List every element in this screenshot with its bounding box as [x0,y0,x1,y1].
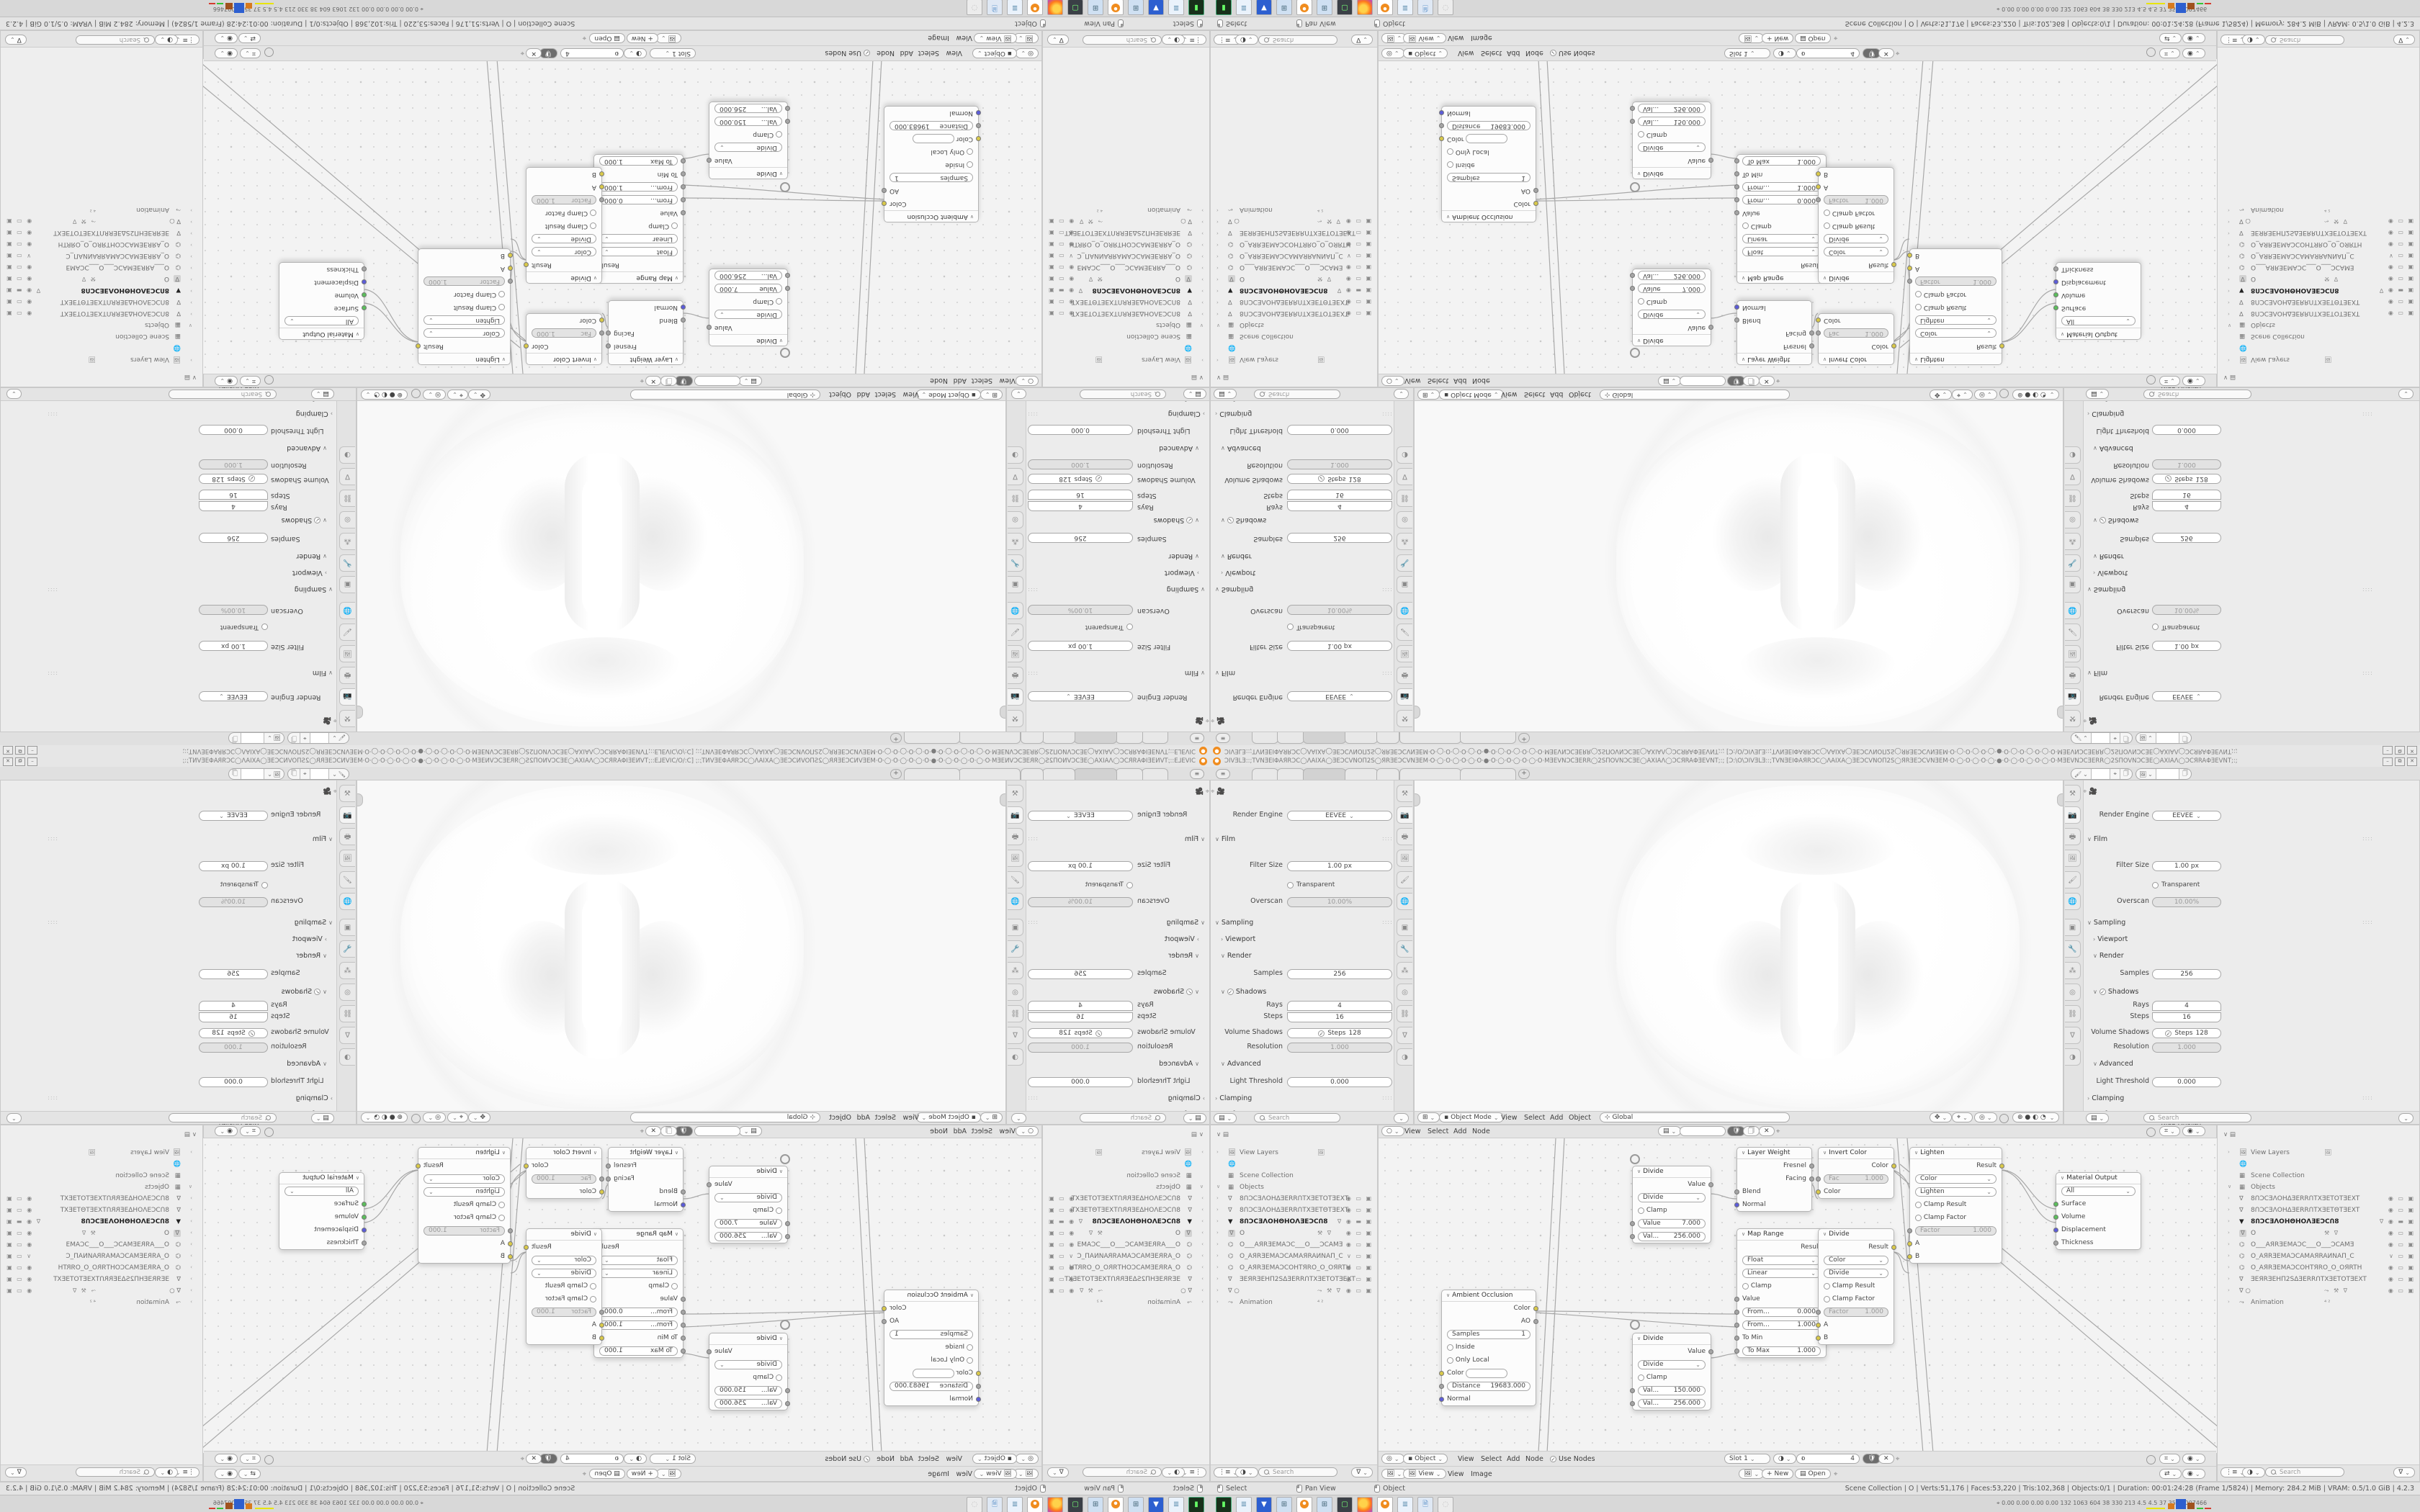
socket-ao-output[interactable] [882,189,887,194]
flip-dropdown[interactable]: ⇄⌄ [238,1469,261,1479]
socket-value-output[interactable] [707,1182,712,1187]
outliner-search-input[interactable]: Search [2265,1467,2344,1477]
factor-field[interactable]: Factor1.000 [1915,1226,1996,1236]
section-film[interactable]: ∨Film [2087,835,2107,843]
render-tab-icon[interactable]: 📷 [339,806,355,824]
light-threshold-field[interactable]: 0.000 [1028,425,1133,435]
overlay-toggle[interactable] [2146,1455,2156,1464]
menu-view[interactable]: View [1448,34,1464,42]
resolution-field[interactable]: 1.000 [2152,459,2221,469]
socket-a-input[interactable] [599,1323,604,1328]
proportional-dropdown[interactable]: ◎⌄ [423,390,446,400]
section-sampling[interactable]: ∨Sampling [295,919,333,927]
outliner-object-row-selected[interactable]: ›▼8ՈƆCƎΛOHΘHOΛƎEƆCՈ8∇ ◉ ▬ ▣ [1043,283,1209,294]
snapping-dropdown[interactable]: ⌖⌄ [1952,390,1973,400]
samples-field[interactable]: 256 [199,969,268,979]
socket-fresnel-output[interactable] [606,344,611,349]
node-ambient-occlusion[interactable]: ∨Ambient Occlusion Color AO Samples1 Ins… [1441,1290,1536,1406]
socket-value-output[interactable] [1708,1182,1713,1187]
filter-size-field[interactable]: 1.00 px [1028,861,1133,871]
node-invert-color[interactable]: ∨Invert Color Color Fac1.000 Color [1818,1147,1894,1199]
fac-field[interactable]: Fac1.000 [532,329,596,338]
resolution-field[interactable]: 1.000 [1028,1043,1133,1053]
socket-blend-input[interactable] [1734,1189,1739,1194]
unlink-button[interactable]: ✕ [645,1126,661,1136]
data-type-select[interactable]: Color⌄ [532,1256,596,1265]
outliner-row-scene-collection[interactable]: ▦Scene Collection [1,1172,202,1183]
outliner-filter-button[interactable]: ∇ ⌄ [1351,35,1373,45]
section-viewport[interactable]: ›Viewport [292,569,327,577]
taskbar-blender-icon[interactable] [1377,1497,1393,1512]
color-swatch[interactable] [1466,135,1507,144]
menu-select[interactable]: Select [1524,1114,1545,1122]
color-swatch[interactable] [913,135,954,144]
section-clamping[interactable]: ›Clamping [1168,1094,1205,1102]
particles-tab-icon[interactable]: ⁂ [1008,533,1023,550]
shading-mode-buttons[interactable]: ⊕ ● ◐ ◔ ⌄ [2012,1112,2059,1122]
outliner-row-scene-collection[interactable]: ▦Scene Collection [1,329,202,340]
socket-color-output[interactable] [524,1164,529,1169]
node-mix-lighten[interactable]: ∨Lighten Result Color⌄ Lighten⌄ Clamp Re… [418,1147,511,1264]
outliner-display-mode[interactable]: ∨ ▤ [184,1131,197,1138]
editor-type-button[interactable]: ○⌄ [1381,376,1404,386]
node-map-range[interactable]: ∨Map Range Result Float⌄ Linear⌄ Clamp V… [1736,1228,1827,1358]
topbar-menu-button[interactable]: ≡ [1216,769,1230,779]
outliner-object-row[interactable]: ›⌬O_AЯRƎEMAƆCAMAЯRAИNAΠ_C∨ ▭ ▣ [1211,1253,1377,1264]
section-render[interactable]: ∨Render [296,552,327,560]
scene-name-field[interactable] [310,733,329,743]
menu-add[interactable]: Add [1507,1455,1520,1463]
outliner-search-input[interactable]: Search [1083,1467,1162,1477]
taskbar-blender-icon[interactable] [1027,0,1043,15]
menu-view[interactable]: View [1404,377,1421,384]
constraints-tab-icon[interactable]: ⛓ [339,1005,355,1022]
from-min-field[interactable]: From...0.000 [1742,1308,1821,1317]
outliner-filter-button[interactable]: ∇ ⌄ [1047,1467,1069,1477]
node-layer-weight[interactable]: ∨Layer Weight Fresnel Facing Blend Norma… [608,1147,684,1212]
outliner-object-row[interactable]: ›∇8ՈƆCƎΛOHΔƎERRՈTXƎETOTƎEXT◉ ▭ ▣ [1,1195,202,1206]
distance-field[interactable]: Distance19683.000 [889,1382,973,1391]
transparent-checkbox[interactable]: Transparent [1287,880,1392,890]
viewport-3d[interactable]: ⊞⌄ ▪ Object Mode ⌄ View Select Add Objec… [1414,780,2063,1125]
filter-size-field[interactable]: 1.00 px [199,861,268,871]
material-tab-icon[interactable]: ◑ [2065,1048,2081,1066]
value-field[interactable]: Value7.000 [714,284,782,294]
add-workspace-button[interactable]: + [1518,733,1530,743]
outliner-search-input[interactable]: Search [2265,35,2344,45]
outliner-object-row[interactable]: ›⌬O___AЯRƎEMAƆC___O___ƆCAMƎ◉ ▭ ▣ [1,260,202,271]
material-tab-icon[interactable]: ◑ [1397,1048,1412,1066]
scene-tab-icon[interactable]: 🖌 [1008,871,1023,888]
data-tab-icon[interactable]: ∇ [2065,468,2081,485]
taskbar-firefox-icon[interactable] [1047,1497,1063,1512]
overscan-field[interactable]: 10.00% [199,605,268,615]
unlink-button[interactable]: ✕ [645,376,661,386]
unlink-button[interactable]: ✕ [526,48,542,58]
section-advanced[interactable]: ∨Advanced [287,444,327,452]
gizmo-dropdown[interactable]: ✥⌄ [1930,390,1952,400]
tool-tab-icon[interactable]: ⚒ [1397,785,1412,802]
constraints-tab-icon[interactable]: ⛓ [1008,1005,1023,1022]
editor-type-button[interactable]: ⊞⌄ [1417,390,1440,400]
tool-tab-icon[interactable]: ⚒ [2065,710,2081,727]
taskbar-blender-icon[interactable] [1296,1497,1312,1512]
data-type-select[interactable]: Color⌄ [1824,248,1888,257]
outliner-row-view-layers[interactable]: ›🖼View Layers🖼 [1211,352,1377,363]
outliner-row-scene-collection[interactable]: ▦Scene Collection [1211,329,1377,340]
image-selector-icon[interactable]: 🖼⌄ [1739,1469,1764,1479]
outliner-object-row[interactable]: ›⌬O_AЯRƎEMAƆCOHTЯRO_O_OЯRTH◉ ▭ ▣ [1,1264,202,1275]
scene-tab-icon[interactable]: 🖌 [2065,871,2081,888]
socket-facing-output[interactable] [606,1176,611,1182]
workspace-tab[interactable] [1042,768,1075,780]
outliner-row-view-layers[interactable]: ›🖼View Layers🖼 [2218,1149,2419,1160]
overlays-dropdown[interactable]: ◉⌄ [2182,33,2205,43]
new-material-button[interactable]: 🗍 [660,1126,677,1136]
taskbar-monitor-icon[interactable]: ▢ [1067,0,1083,15]
section-sampling[interactable]: ∨Sampling [1215,919,1253,927]
outliner-filter-button[interactable]: ∇ ⌄ [2393,1467,2415,1477]
render-tab-icon[interactable]: 📷 [2065,688,2081,706]
editor-type-button[interactable]: ◎⌄ [1381,48,1404,58]
distance-field[interactable]: Distance19683.000 [1447,1382,1531,1391]
outliner-object-row[interactable]: ›∇8ՈƆCƎΛOHΔƎERRՈTXƎETΘTƎEXT◉ ▭ ▣ [1211,294,1377,305]
section-film[interactable]: ∨Film [313,669,333,677]
socket-b-input[interactable] [1907,1254,1912,1259]
workspace-tab[interactable] [1376,732,1399,744]
menu-view[interactable]: View [946,49,962,57]
menu-view[interactable]: View [1501,390,1518,398]
node-mix-divide[interactable]: ∨Divide Result Color⌄ Divide⌄ Clamp Resu… [526,167,602,284]
node-math-divide[interactable]: ∨Divide Value Divide⌄ Clamp Value7.000 V… [709,1166,788,1243]
steps-field[interactable]: 16 [1287,490,1392,500]
snapping-dropdown[interactable]: ⌗⌄ [240,376,261,386]
node-math-divide[interactable]: ∨Divide Value Divide⌄ Clamp Val...150.00… [1632,102,1711,179]
render-engine-select[interactable]: EEVEE⌄ [199,691,268,701]
data-type-select[interactable]: Float⌄ [599,1256,678,1265]
menu-select[interactable]: Select [918,1455,939,1463]
outliner-object-row-active[interactable]: ›∇O⚒ ∇◉ ▭ ▣ [2218,1230,2419,1241]
section-clamping[interactable]: ›Clamping [1168,410,1205,418]
light-threshold-field[interactable]: 0.000 [2152,425,2221,435]
outliner-object-row[interactable]: ›⌬O_AЯRƎEMAƆCAMAЯRAИNAΠ_C∨ ▭ ▣ [2218,1253,2419,1264]
outliner-object-row[interactable]: ›∇8ՈƆCƎΛOHΔƎERRՈTXƎETΘTƎEXT◉ ▭ ▣ [1,1207,202,1218]
section-render[interactable]: ∨Render [1168,952,1199,960]
editor-type-button[interactable]: ○⌄ [1016,376,1039,386]
pin-icon[interactable]: ⌖ [521,49,524,57]
view-layer-name-field[interactable] [241,733,264,743]
scene-selector[interactable]: 🖌⌄ ⌖ 🗍 [2071,732,2133,744]
node-material-output[interactable]: ∨Material Output All⌄ Surface Volume Dis… [2056,262,2141,340]
material-name-field[interactable] [1680,376,1726,386]
menu-select[interactable]: Select [1481,49,1502,57]
material-tab-icon[interactable]: ◑ [339,1048,355,1066]
node-mix-lighten[interactable]: ∨Lighten Result Color⌄ Lighten⌄ Clamp Re… [1909,248,2002,365]
light-threshold-field[interactable]: 0.000 [1287,425,1392,435]
render-engine-select[interactable]: EEVEE⌄ [2152,691,2221,701]
samples-field[interactable]: 256 [1287,533,1392,543]
editor-type-button[interactable]: ◎⌄ [1381,1454,1404,1464]
outliner-object-row[interactable]: ›⌬O___AЯRƎEMAƆC___O___ƆCAMƎ◉ ▭ ▣ [1211,260,1377,271]
socket-a-input[interactable] [1907,1241,1912,1246]
section-clamping[interactable]: ›Clamping [296,1094,333,1102]
menu-view[interactable]: View [1448,1470,1464,1478]
operation-select[interactable]: Divide⌄ [714,1360,782,1369]
outliner-row-view-layers[interactable]: ›🖼View Layers🖼 [1,1149,202,1160]
new-material-button[interactable]: 🗍 [1743,376,1760,386]
outliner-object-row[interactable]: ›⌬O_AЯRƎEMAƆCAMAЯRAИNAΠ_C∨ ▭ ▣ [1211,248,1377,259]
particles-tab-icon[interactable]: ⁂ [1008,962,1023,979]
section-advanced[interactable]: ∨Advanced [1159,1060,1199,1068]
node-material-output[interactable]: ∨Material Output All⌄ Surface Volume Dis… [279,262,364,340]
output-tab-icon[interactable]: 🖶 [1397,667,1412,684]
unlink-button[interactable]: ✕ [1878,48,1894,58]
section-viewport[interactable]: ›Viewport [2093,935,2128,943]
socket-surface-input[interactable] [2053,1202,2058,1207]
overscan-field[interactable]: 10.00% [2152,605,2221,615]
node-invert-color[interactable]: ∨Invert Color Color Fac1.000 Color [1818,313,1894,365]
resolution-field[interactable]: 1.000 [199,1043,268,1053]
outliner-filter-button[interactable]: ∇ ⌄ [2393,35,2415,45]
steps-field[interactable]: 16 [2152,490,2221,500]
transform-orientation-select[interactable]: ⊹ Global [630,390,820,400]
menu-node[interactable]: Node [930,1128,948,1135]
operation-select[interactable]: Divide⌄ [714,1193,782,1202]
taskbar-terminal-icon[interactable]: ▮ [1216,1497,1232,1512]
torus-object[interactable] [400,402,804,726]
outliner-object-row[interactable]: ›⌬O___AЯRƎEMAƆC___O___ƆCAMƎ◉ ▭ ▣ [1043,260,1209,271]
transparent-checkbox[interactable]: Transparent [2152,622,2221,632]
value-field[interactable]: Val...150.000 [1638,1386,1706,1395]
socket-value-input[interactable] [681,1297,686,1302]
outliner-search-input[interactable]: Search [1258,1467,1337,1477]
menu-add[interactable]: Add [954,1128,967,1135]
node-invert-color[interactable]: ∨Invert Color Color Fac1.000 Color [526,313,602,365]
editor-type-button[interactable]: ▤⌄ [1214,1113,1237,1123]
outliner-object-row[interactable]: ›∇8ՈƆCƎΛOHΔƎERRՈTXƎETOTƎEXT◉ ▭ ▣ [1211,306,1377,317]
properties-search-input[interactable]: Search [169,390,277,399]
node-map-range[interactable]: ∨Map Range Result Float⌄ Linear⌄ Clamp V… [593,1228,684,1358]
taskbar-notes-icon[interactable]: ≣ [1397,0,1413,15]
outliner-object-row[interactable]: ›∇ƎEЯRƎEHΠ2SΔƎERRՈTXƎETOTƎEXT◉ ▭ ▣ [2218,1276,2419,1287]
taskbar-documents-icon[interactable]: 🗎 [1417,1497,1433,1512]
light-threshold-field[interactable]: 0.000 [2152,1077,2221,1087]
socket-b-input[interactable] [599,1336,604,1341]
section-render[interactable]: ∨Render [1221,952,1252,960]
target-select[interactable]: All⌄ [2061,1187,2136,1196]
workspace-tab[interactable] [1277,768,1304,780]
value-field[interactable]: Value7.000 [714,1219,782,1228]
overlays-dropdown[interactable]: ◉⌄ [2182,1454,2205,1464]
menu-node[interactable]: Node [877,1455,895,1463]
render-engine-select[interactable]: EEVEE⌄ [199,811,268,821]
outliner-object-row[interactable]: ›⌬O_AЯRƎEMAƆCOHTЯRO_O_OЯRTH◉ ▭ ▣ [1043,237,1209,248]
from-min-field[interactable]: From...0.000 [1742,196,1821,205]
outliner-object-row-active[interactable]: ›∇O⚒ ∇◉ ▭ ▣ [1,1230,202,1241]
sidebar-toggle-arrow[interactable] [357,793,363,806]
physics-tab-icon[interactable]: ◎ [1397,511,1412,528]
particles-tab-icon[interactable]: ⁂ [339,962,355,979]
image-selector-icon[interactable]: 🖼⌄ [656,1469,681,1479]
node-canvas[interactable]: ∨Ambient Occlusion Color AO Samples1 Ins… [202,1138,1041,1453]
section-advanced[interactable]: ∨Advanced [2093,1060,2133,1068]
outliner-row-view-layers[interactable]: ›🖼View Layers🖼 [1,352,202,363]
menu-view[interactable]: View [956,34,972,42]
node-math-divide[interactable]: ∨Divide Value Divide⌄ Clamp Value7.000 V… [709,269,788,346]
object-tab-icon[interactable]: ▣ [1397,919,1412,936]
pin-icon[interactable]: ⌖ [1834,1470,1837,1478]
data-type-select[interactable]: Color⌄ [423,1174,505,1184]
outliner-row-scene-collection[interactable]: ▦Scene Collection [1211,1172,1377,1183]
pin-icon[interactable]: ⌖ [300,733,310,743]
resolution-field[interactable]: 1.000 [2152,1043,2221,1053]
outliner-row-scene-collection[interactable]: ▦Scene Collection [1043,1172,1209,1183]
outliner-object-row[interactable]: ›⌬O___AЯRƎEMAƆC___O___ƆCAMƎ◉ ▭ ▣ [2218,1241,2419,1252]
data-type-select[interactable]: Float⌄ [599,248,678,257]
outliner-object-row[interactable]: ›∇8ՈƆCƎΛOHΔƎERRՈTXƎETΘTƎEXT◉ ▭ ▣ [2218,1207,2419,1218]
properties-search-input[interactable]: Search [1080,390,1166,399]
section-render[interactable]: ∨Render [296,952,327,960]
menu-object[interactable]: Object [1569,390,1591,398]
node-canvas[interactable]: ∨Ambient Occlusion Color AO Samples1 Ins… [1379,59,2218,374]
editor-type-button[interactable]: ◎⌄ [1016,1454,1039,1464]
distance-field[interactable]: Distance19683.000 [889,122,973,131]
material-tab-icon[interactable]: ◑ [1008,1048,1023,1066]
minimize-button[interactable]: – [27,746,37,755]
outliner-filter-button[interactable]: ∇ ⌄ [5,1467,27,1477]
socket-color-input[interactable] [1439,1371,1444,1376]
copy-icon[interactable]: 🗍 [2179,769,2191,779]
pin-icon[interactable]: ⌖ [640,1128,644,1135]
socket-result-output[interactable] [1999,1164,2004,1169]
scene-tab-icon[interactable]: 🖌 [2065,624,2081,641]
outliner-row-world[interactable]: 🌐 [2218,1161,2419,1171]
volume-shadows-field[interactable]: ✓Steps128 [199,474,268,484]
factor-field[interactable]: Factor1.000 [423,1226,505,1236]
value-field[interactable]: Value7.000 [1638,284,1706,294]
socket-blend-input[interactable] [681,1189,686,1194]
rays-field[interactable]: 4 [199,501,268,511]
taskbar-notes-icon[interactable]: ≣ [1397,1497,1413,1512]
pin-icon[interactable]: ⌖ [583,1470,586,1478]
rays-field[interactable]: 4 [2152,1001,2221,1011]
outliner-row-animation[interactable]: ›⤳Animation⁴² [2218,1299,2419,1310]
material-icon-button[interactable]: ▤⌄ [739,376,762,386]
menu-select[interactable]: Select [1481,1455,1502,1463]
node-mix-lighten[interactable]: ∨Lighten Result Color⌄ Lighten⌄ Clamp Re… [1909,1147,2002,1264]
blend-mode-select[interactable]: Divide⌄ [1824,235,1888,244]
material-icon-button[interactable]: ▤⌄ [1658,1126,1681,1136]
snapping-dropdown[interactable]: ⌗⌄ [2159,376,2180,386]
taskbar-inactive-app-icon[interactable]: ◌ [967,1497,982,1512]
menu-add[interactable]: Add [900,1455,913,1463]
menu-add[interactable]: Add [1453,377,1466,384]
outliner-row-scene-collection[interactable]: ▦Scene Collection [2218,1172,2419,1183]
data-tab-icon[interactable]: ∇ [1397,468,1412,485]
socket-to-min-input[interactable] [681,1336,686,1341]
outliner-object-row[interactable]: ›∇ ○⤳ ⚒ ∇◉ ▭ ▣ [2218,214,2419,225]
volume-shadows-field[interactable]: ✓Steps128 [1287,474,1392,484]
samples-field[interactable]: 256 [1028,969,1133,979]
menu-select[interactable]: Select [875,1114,896,1122]
outliner-row-objects[interactable]: ∨▦Objects [1043,1184,1209,1194]
workspace-tab[interactable] [1460,732,1516,744]
menu-node[interactable]: Node [1525,49,1543,57]
transparent-checkbox[interactable]: Transparent [1287,622,1392,632]
volume-shadows-field[interactable]: ✓Steps128 [2152,1028,2221,1038]
world-tab-icon[interactable]: 🌐 [339,893,355,910]
material-tab-icon[interactable]: ◑ [1397,446,1412,464]
socket-color-output[interactable] [524,344,529,349]
outliner-object-row[interactable]: ›⌬O_AЯRƎEMAƆCOHTЯRO_O_OЯRTH◉ ▭ ▣ [1,237,202,248]
particles-tab-icon[interactable]: ⁂ [339,533,355,550]
properties-search-input[interactable]: Search [1254,390,1340,399]
node-layer-weight[interactable]: ∨Layer Weight Fresnel Facing Blend Norma… [608,300,684,365]
scene-name-field[interactable] [310,769,329,779]
mode-select[interactable]: ▪ Object Mode ⌄ [1439,1112,1504,1122]
outliner-object-row-active[interactable]: ›∇O⚒ ∇◉ ▭ ▣ [1211,271,1377,282]
menu-add[interactable]: Add [1453,1128,1466,1135]
outliner-object-row[interactable]: ›∇ƎEЯRƎEHΠ2SΔƎERRՈTXƎETOTƎEXT◉ ▭ ▣ [1,1276,202,1287]
outliner-object-row-active[interactable]: ›∇O⚒ ∇◉ ▭ ▣ [2218,271,2419,282]
socket-thickness-input[interactable] [362,1241,367,1246]
data-type-select[interactable]: Color⌄ [1824,1256,1888,1265]
socket-facing-output[interactable] [1809,1176,1814,1182]
use-nodes-checkbox[interactable]: ✓ Use Nodes [1550,49,1595,57]
section-sampling[interactable]: ∨Sampling [1167,585,1205,593]
overlays-dropdown[interactable]: ◉⌄ [2182,1469,2205,1479]
outliner-object-row[interactable]: ›⌬O_AЯRƎEMAƆCAMAЯRAИNAΠ_C∨ ▭ ▣ [1043,1253,1209,1264]
particles-tab-icon[interactable]: ⁂ [1397,962,1412,979]
fake-user-shield-button[interactable]: 🛡 [675,1126,693,1136]
socket-result-output[interactable] [416,1164,421,1169]
output-tab-icon[interactable]: 🖶 [339,667,355,684]
outliner-row-world[interactable]: 🌐 [1043,1161,1209,1171]
snapping-dropdown[interactable]: ⌗⌄ [2159,1126,2180,1136]
outliner-object-row[interactable]: ›⌬O_AЯRƎEMAƆCOHTЯRO_O_OЯRTH◉ ▭ ▣ [1211,237,1377,248]
material-tab-icon[interactable]: ◑ [1008,446,1023,464]
filter-size-field[interactable]: 1.00 px [1028,641,1133,651]
image-selector-icon[interactable]: 🖼⌄ [1739,33,1764,43]
data-type-select[interactable]: Color⌄ [423,329,505,338]
image-mode-select[interactable]: 🖼 View ⌄ [1403,33,1446,43]
menu-select[interactable]: Select [1524,390,1545,398]
factor-field[interactable]: Factor1.000 [1824,196,1888,205]
taskbar-notes-icon[interactable]: ≣ [1168,0,1184,15]
outliner-row-scene-collection[interactable]: ▦Scene Collection [2218,329,2419,340]
render-tab-icon[interactable]: 📷 [1397,806,1412,824]
material-name-field[interactable]: ᴆ4 [1796,48,1860,58]
constraints-tab-icon[interactable]: ⛓ [1008,490,1023,507]
steps-field[interactable]: 16 [1028,1012,1133,1022]
pin-icon[interactable]: ⌖ [2110,769,2120,779]
socket-fresnel-output[interactable] [1809,1164,1814,1169]
taskbar-inactive-app-icon[interactable]: ◌ [1438,1497,1453,1512]
unlink-button[interactable]: ✕ [1878,1454,1894,1464]
pin-icon[interactable]: ⌖ [640,377,644,384]
editor-type-button[interactable]: ▤⌄ [2086,389,2109,399]
volume-shadows-field[interactable]: ✓Steps128 [199,1028,268,1038]
view-layer-tab-icon[interactable]: 🖼 [2065,850,2081,867]
socket-result-output[interactable] [1891,1245,1896,1250]
taskbar-terminal-icon[interactable]: ▮ [1216,0,1232,15]
editor-type-button[interactable]: ▤⌄ [311,389,334,399]
socket-surface-input[interactable] [2053,306,2058,311]
section-shadows[interactable]: ∨✓ Shadows [1154,516,1199,524]
outliner-row-animation[interactable]: ›⤳Animation⁴² [1,1299,202,1310]
overlays-dropdown[interactable]: ◉⌄ [2182,48,2205,58]
title-bar[interactable]: ƆIVƎLƎ::;TVNƎEIΦAЯRƆC◯ΛAIXA◯ƎEƆCVNOΠ2S◯Я… [1210,756,2420,768]
